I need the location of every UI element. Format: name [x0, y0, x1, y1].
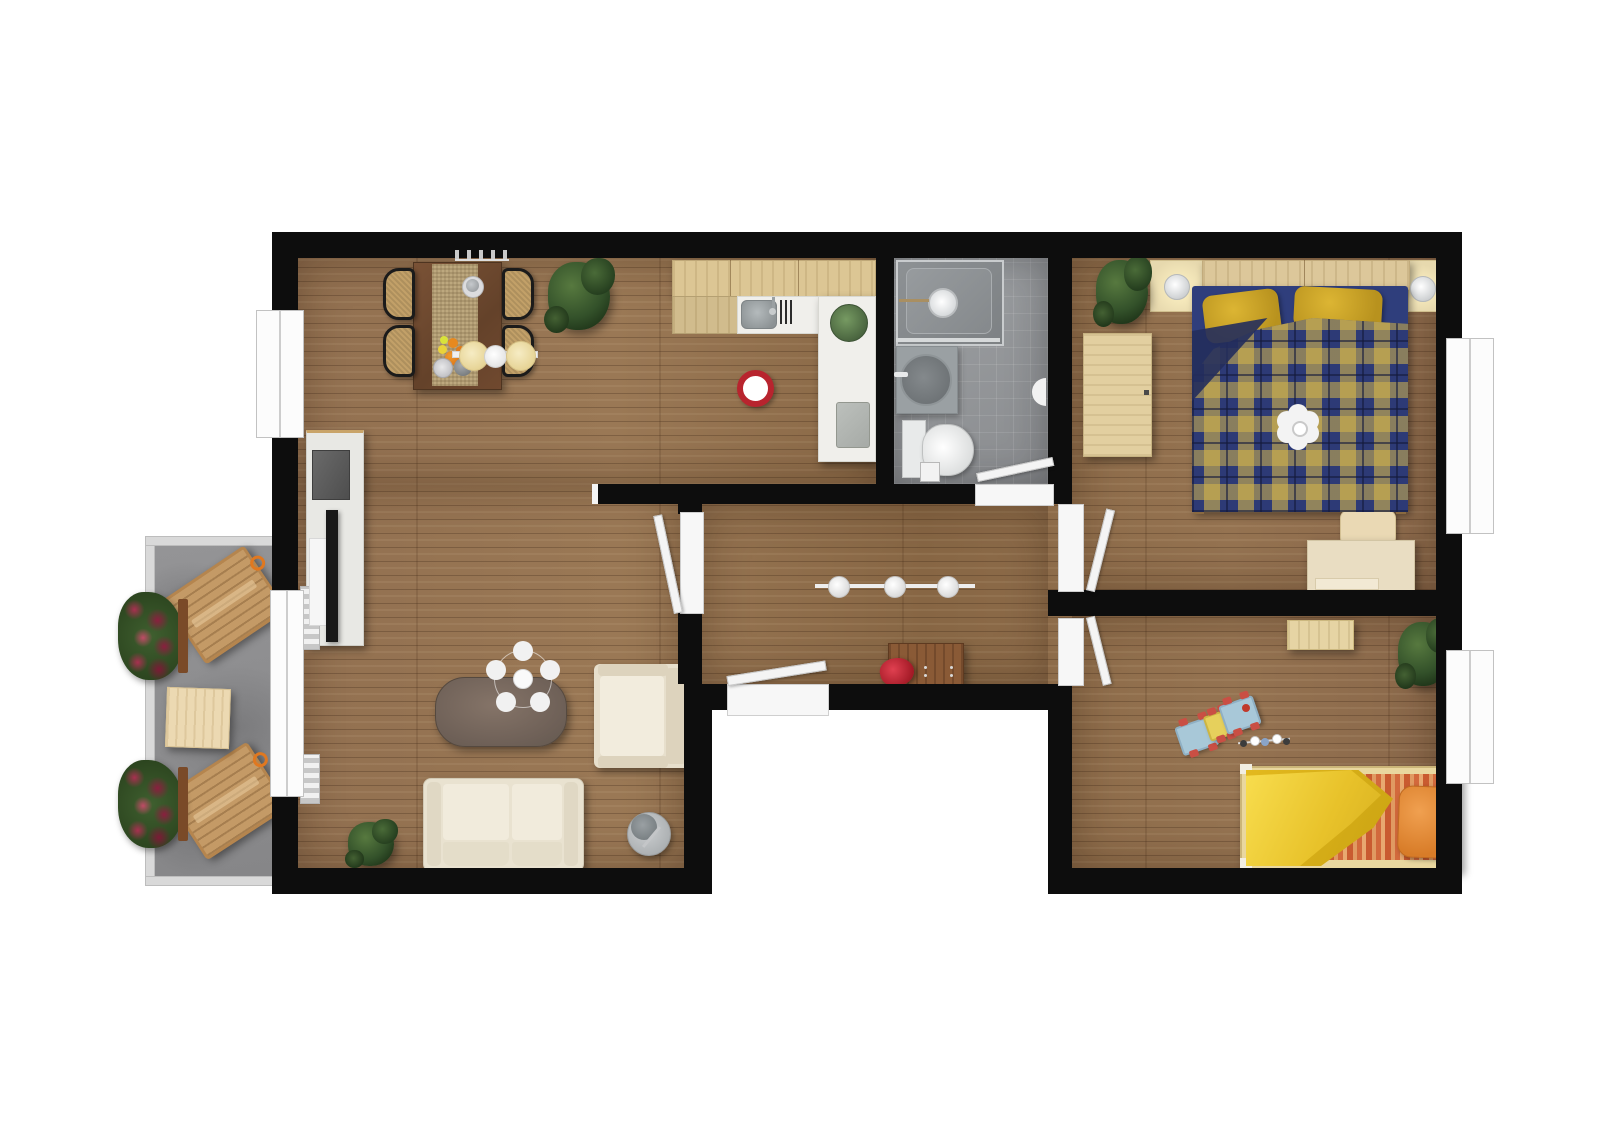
pet-bowl [737, 370, 774, 407]
kitchen-base-cabinet [672, 296, 739, 334]
balcony-railing-top [145, 536, 274, 546]
toy-figure [1283, 738, 1290, 745]
toy-figure [1261, 738, 1269, 746]
toy-figure [1250, 736, 1260, 746]
door-jamb-living [680, 512, 704, 614]
sofa-armrest [564, 782, 578, 866]
fruit-bowl-green [830, 304, 868, 342]
sideboard-handle [924, 666, 927, 669]
dining-chair [383, 325, 415, 377]
sofa-front-cushion [512, 842, 562, 866]
pendant-lamp-shade [506, 341, 536, 371]
shower-head [928, 288, 958, 318]
dining-chair [383, 268, 415, 320]
desk-drawer [1315, 578, 1379, 590]
shower-glass [896, 338, 1000, 342]
dish-rack [780, 300, 794, 324]
balcony-glass-door [270, 590, 304, 797]
sofa-front-cushion [443, 842, 509, 866]
speaker [312, 450, 350, 500]
potted-plant [548, 262, 610, 330]
wall-bedroom-kids [1048, 590, 1462, 616]
cutting-board [836, 402, 870, 448]
balcony-railing-bottom [145, 876, 274, 886]
door-jamb-kids [1058, 618, 1084, 686]
nightstand-lamp [1164, 274, 1190, 300]
wall-bottom-right [1048, 868, 1462, 894]
balcony-table [165, 687, 231, 749]
wall-left [272, 436, 298, 590]
floor-plan-canvas [0, 0, 1600, 1131]
shower-arm [899, 299, 929, 302]
hall-light [884, 576, 906, 598]
wall-shelf-items [455, 250, 509, 261]
toy-figure [1240, 740, 1247, 747]
tv [326, 510, 338, 642]
potted-plant [1096, 260, 1148, 324]
toy-train-chimney [1242, 704, 1250, 712]
window-kids-room [1446, 650, 1494, 784]
toy-figure [1272, 734, 1282, 744]
basin-faucet [894, 372, 908, 377]
wall-hall-bottom [827, 684, 1072, 710]
plate [433, 358, 453, 378]
armchair-seat [600, 676, 664, 756]
nightstand-lamp [1410, 276, 1436, 302]
washbasin [900, 354, 952, 406]
entry-door-threshold [727, 684, 829, 716]
door-threshold-bathroom [975, 484, 1054, 506]
kitchen-cabinets [672, 260, 876, 298]
kids-wardrobe-shelf [1287, 620, 1354, 650]
armchair-armrest [598, 756, 668, 768]
sofa-seat-cushion [443, 784, 509, 840]
dining-chair [502, 268, 534, 320]
entry-void [712, 684, 1048, 924]
hall-light [828, 576, 850, 598]
hall-light [937, 576, 959, 598]
door-jamb-bedroom [1058, 504, 1084, 592]
armchair-armrest [598, 664, 668, 676]
pendant-lamp-center [484, 345, 507, 368]
cabinet-seam [798, 260, 799, 296]
wall-hall-bottom [684, 684, 727, 710]
wall-hall-top [592, 484, 975, 504]
small-plant [348, 822, 394, 866]
window-bedroom [1446, 338, 1494, 534]
wall-hall-kids [1048, 684, 1072, 868]
cabinet-seam [730, 260, 731, 296]
mug [466, 279, 479, 292]
window-dining [256, 310, 304, 438]
wall-left [272, 258, 298, 310]
wall-bathroom-bedroom [1048, 258, 1072, 504]
sofa-seat-cushion [512, 784, 562, 840]
ceiling-lamp [513, 669, 533, 689]
bedroom-side-table [1083, 333, 1152, 457]
wall-bottom-left [272, 868, 712, 894]
wall-top [272, 232, 1462, 258]
wall-end-cap [592, 484, 598, 504]
sofa-armrest [427, 782, 441, 866]
wall-living-right [684, 684, 712, 894]
faucet-knob [769, 308, 776, 315]
shelf-seam [1304, 260, 1305, 288]
fruit-lime [440, 336, 448, 344]
flower-lamp-center [1292, 421, 1308, 437]
bathroom-bin [920, 462, 940, 482]
wall-bathroom-left [876, 258, 894, 504]
wall-living-hall [678, 612, 702, 684]
side-table-handle [1144, 390, 1149, 395]
